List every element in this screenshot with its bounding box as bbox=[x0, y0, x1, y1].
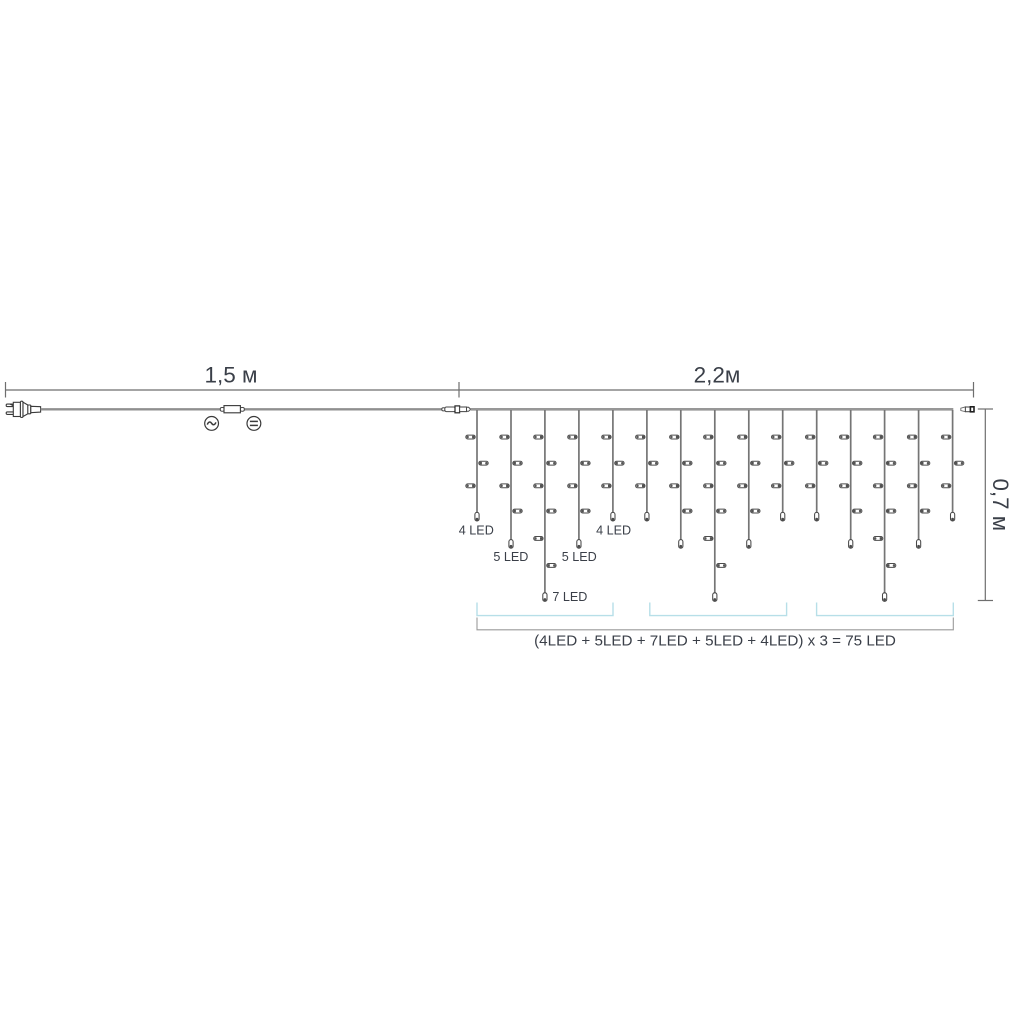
svg-text:2,2м: 2,2м bbox=[694, 363, 741, 388]
svg-text:0,7 м: 0,7 м bbox=[988, 479, 1013, 532]
svg-text:5 LED: 5 LED bbox=[493, 550, 528, 564]
svg-text:(4LED + 5LED + 7LED + 5LED + 4: (4LED + 5LED + 7LED + 5LED + 4LED) x 3 =… bbox=[534, 633, 896, 650]
svg-text:4 LED: 4 LED bbox=[459, 524, 494, 538]
svg-text:7 LED: 7 LED bbox=[552, 590, 587, 604]
svg-text:1,5 м: 1,5 м bbox=[205, 363, 258, 388]
svg-text:4 LED: 4 LED bbox=[596, 524, 631, 538]
svg-text:5 LED: 5 LED bbox=[562, 550, 597, 564]
